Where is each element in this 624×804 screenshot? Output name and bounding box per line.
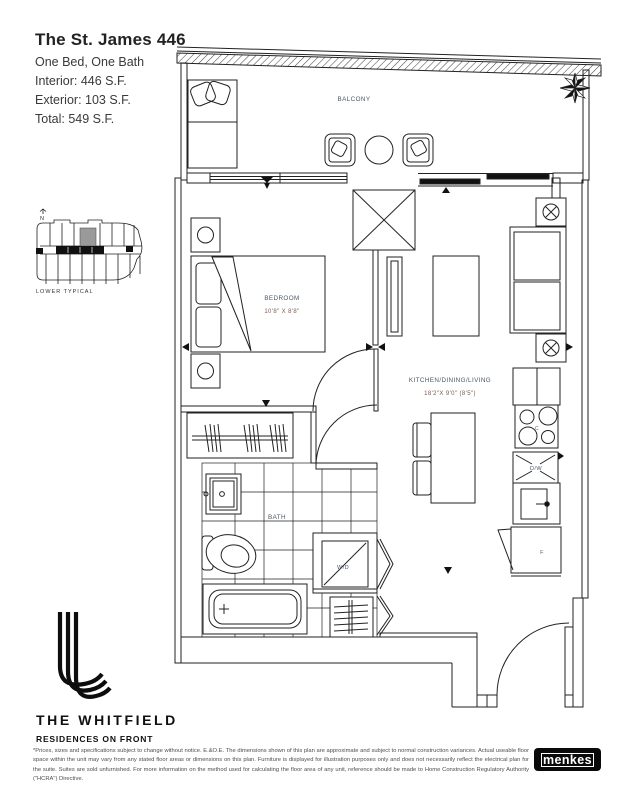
building-tagline: RESIDENCES ON FRONT — [36, 734, 153, 744]
sofa — [510, 227, 566, 333]
side-table-lamp-bottom — [536, 334, 566, 362]
balcony-table — [365, 136, 393, 164]
room-dim-bedroom: 10'8" X 8'8" — [264, 309, 299, 315]
room-label-kitchen: KITCHEN/DINING/LIVING — [409, 377, 491, 384]
appliance-label-fridge: F — [540, 550, 544, 556]
vanity-sink — [204, 474, 241, 514]
appliance-label-dw: D/W — [530, 466, 542, 472]
balcony-chairs — [325, 134, 433, 166]
whitfield-logo-icon — [30, 604, 140, 708]
bedroom-door-leaf — [374, 349, 378, 411]
room-label-bath: BATH — [268, 514, 286, 521]
bedroom-south-wall — [181, 406, 316, 412]
suite-right-wall-upper — [582, 180, 588, 598]
party-wall-hatch — [177, 47, 601, 76]
room-dim-kitchen: 18'2"X 9'0" (8'5") — [424, 391, 476, 397]
appliance-label-wd: W/D — [337, 565, 349, 571]
toilet — [202, 530, 259, 578]
dining-chairs — [413, 423, 431, 495]
bedroom-door-swing — [313, 349, 375, 411]
shaft — [353, 190, 415, 250]
developer-name: menkes — [541, 753, 594, 767]
building-name: THE WHITFIELD — [36, 712, 178, 728]
linen-closet — [330, 597, 373, 637]
coffee-table — [433, 256, 479, 336]
bedroom-closet — [187, 413, 293, 458]
dining-table — [431, 413, 475, 503]
disclaimer-text: *Prices, sizes and specifications subjec… — [33, 747, 529, 785]
compass-icon — [560, 73, 590, 103]
window-wall — [187, 173, 583, 186]
entry-door-leaf — [565, 627, 573, 695]
bifold-doors — [377, 539, 393, 635]
developer-logo: menkes — [534, 748, 601, 771]
brand-block: THE WHITFIELD RESIDENCES ON FRONT — [30, 604, 250, 713]
fridge — [511, 527, 561, 573]
hall-south-wall — [380, 633, 477, 637]
sliding-door-panel — [420, 179, 480, 184]
bedroom-east-wall — [373, 250, 378, 345]
entry-door-swing — [497, 623, 569, 695]
suite-left-wall — [175, 178, 181, 663]
floorplan-sheet: The St. James 446 One Bed, One Bath Inte… — [0, 0, 624, 804]
balcony-lounger — [188, 80, 237, 168]
washer-dryer-closet — [313, 533, 377, 593]
side-table-lamp-top — [536, 198, 566, 226]
room-label-balcony: BALCONY — [338, 96, 371, 103]
bath-door-swing — [316, 405, 377, 466]
balcony-left-wall — [181, 63, 187, 180]
appliance-label-cooktop: C — [535, 426, 539, 432]
suite-right-wall-lower — [573, 598, 583, 707]
kitchen-counter — [498, 368, 561, 576]
room-label-bedroom: BEDROOM — [264, 295, 299, 302]
bedroom-furniture — [191, 218, 325, 388]
bath-door-leaf — [316, 463, 377, 469]
sliding-door-panel-fixed — [487, 174, 549, 179]
tv-console — [387, 257, 402, 336]
